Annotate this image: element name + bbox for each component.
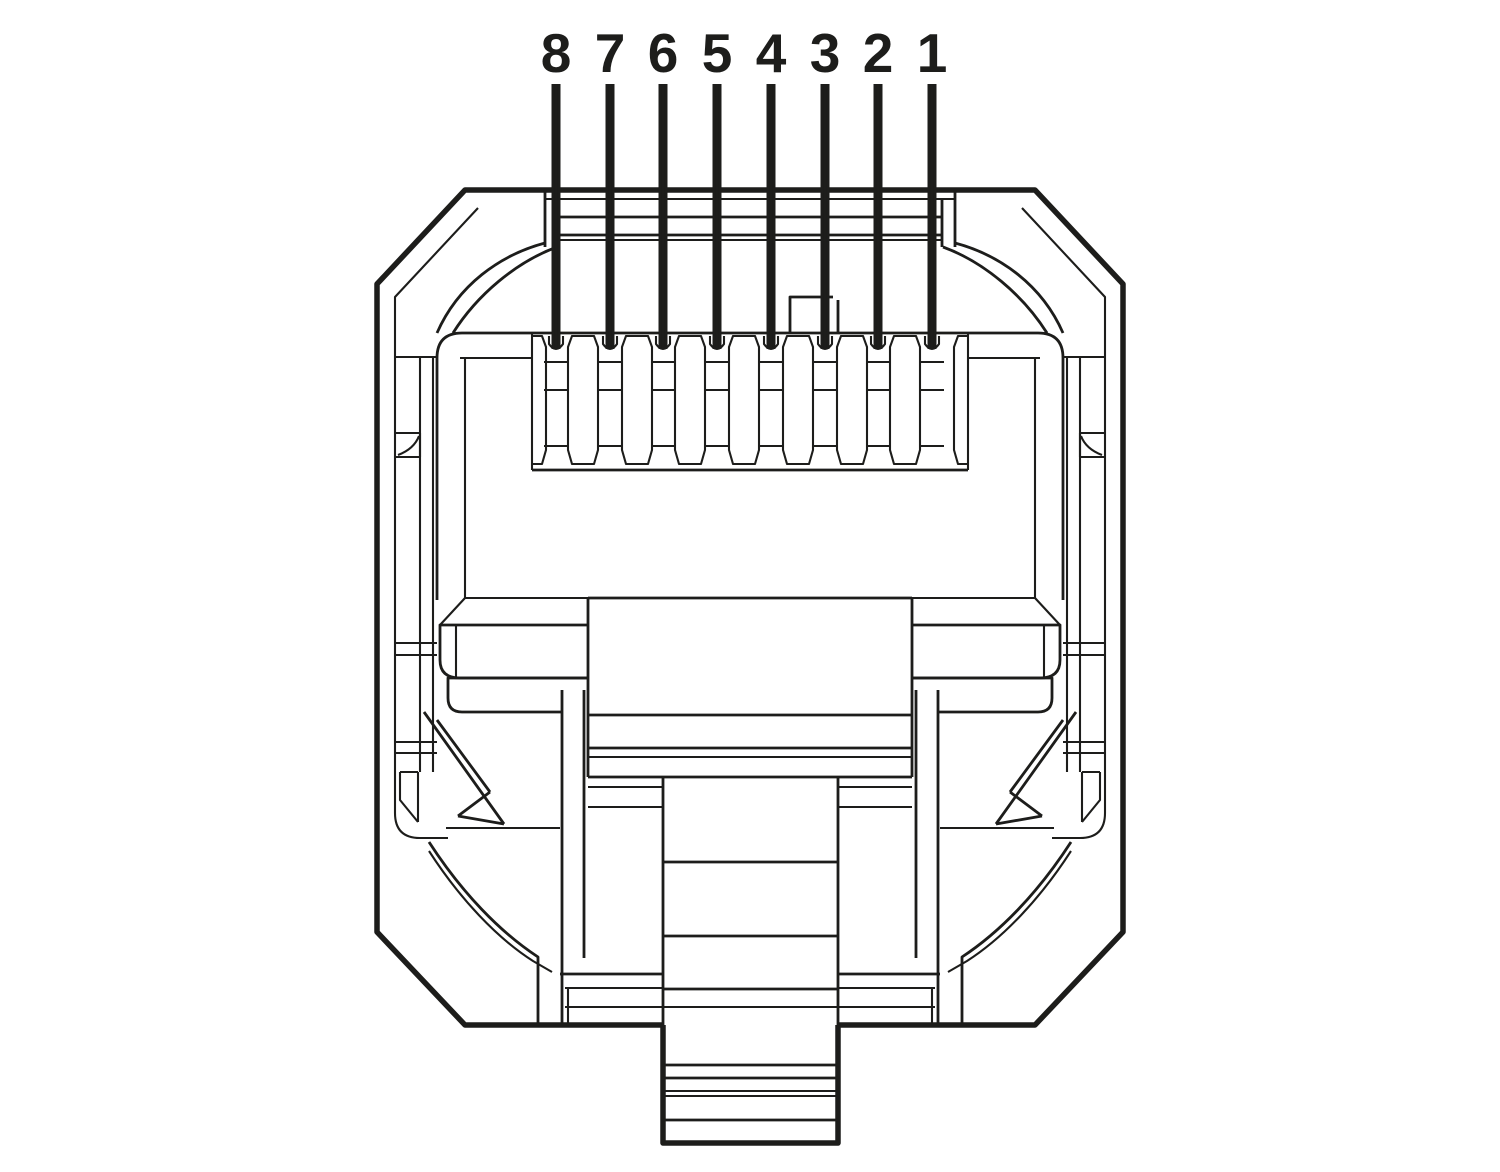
connector-line-drawing: 87654321 — [0, 0, 1500, 1172]
pin-slot-window-1 — [920, 362, 944, 446]
contact-separator-ribs — [532, 336, 968, 464]
pin-slot-window-2 — [866, 362, 890, 446]
contact-housing — [437, 333, 1063, 600]
pin-number-label-4: 4 — [756, 22, 787, 84]
corner-wing-right — [940, 712, 1076, 828]
latch-tab — [663, 777, 838, 1143]
side-posts — [562, 690, 938, 974]
pin-number-label-7: 7 — [595, 22, 626, 84]
lower-shell-curves — [429, 842, 1071, 1024]
outer-housing-outline — [377, 190, 1123, 1025]
side-rail-right — [1063, 357, 1105, 822]
pin-number-label-5: 5 — [702, 22, 733, 84]
corner-wing-left — [424, 712, 560, 828]
keying-notch — [790, 297, 838, 332]
center-body-block — [588, 598, 912, 807]
pin-number-label-8: 8 — [541, 22, 572, 84]
pin-slot-window-6 — [651, 362, 675, 446]
body-step-right — [912, 625, 1060, 712]
pin-slot-window-5 — [705, 362, 729, 446]
cavity-floor-ledge — [440, 598, 1060, 625]
pin-slot-window-3 — [813, 362, 837, 446]
pin-number-label-1: 1 — [917, 22, 948, 84]
inner-shell-outline — [395, 208, 1105, 838]
side-rail-left — [395, 357, 437, 822]
pin-slot-window-8 — [544, 362, 568, 446]
pin-contact-slots — [544, 336, 944, 446]
pin-number-label-3: 3 — [810, 22, 841, 84]
rj45-connector-diagram: 87654321 — [0, 0, 1500, 1172]
shoulder-curves — [437, 243, 1063, 333]
pin-slot-window-7 — [598, 362, 622, 446]
pin-number-labels: 87654321 — [541, 22, 948, 84]
body-step-left — [440, 625, 588, 712]
pin-number-label-6: 6 — [648, 22, 679, 84]
pin-slot-window-4 — [759, 362, 783, 446]
pin-number-label-2: 2 — [863, 22, 894, 84]
